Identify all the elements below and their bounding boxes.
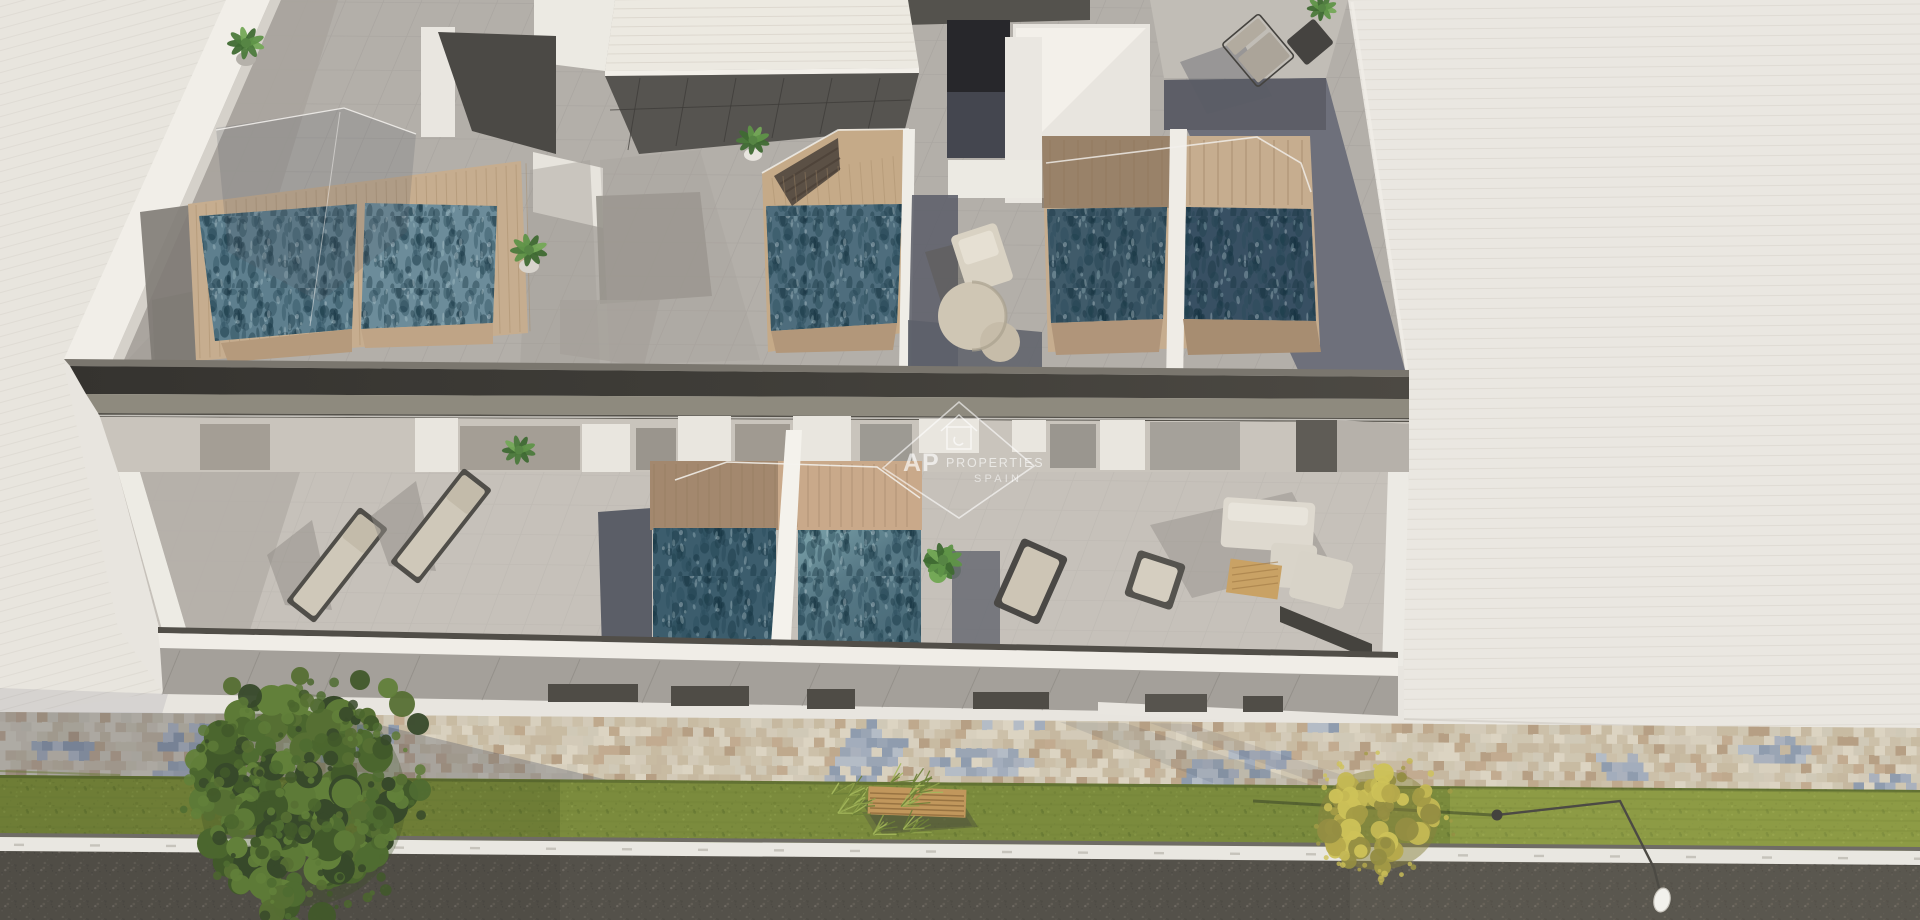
svg-text:PROPERTIES: PROPERTIES bbox=[946, 456, 1044, 470]
svg-text:SPAIN: SPAIN bbox=[974, 473, 1022, 485]
svg-text:AP: AP bbox=[903, 449, 940, 477]
